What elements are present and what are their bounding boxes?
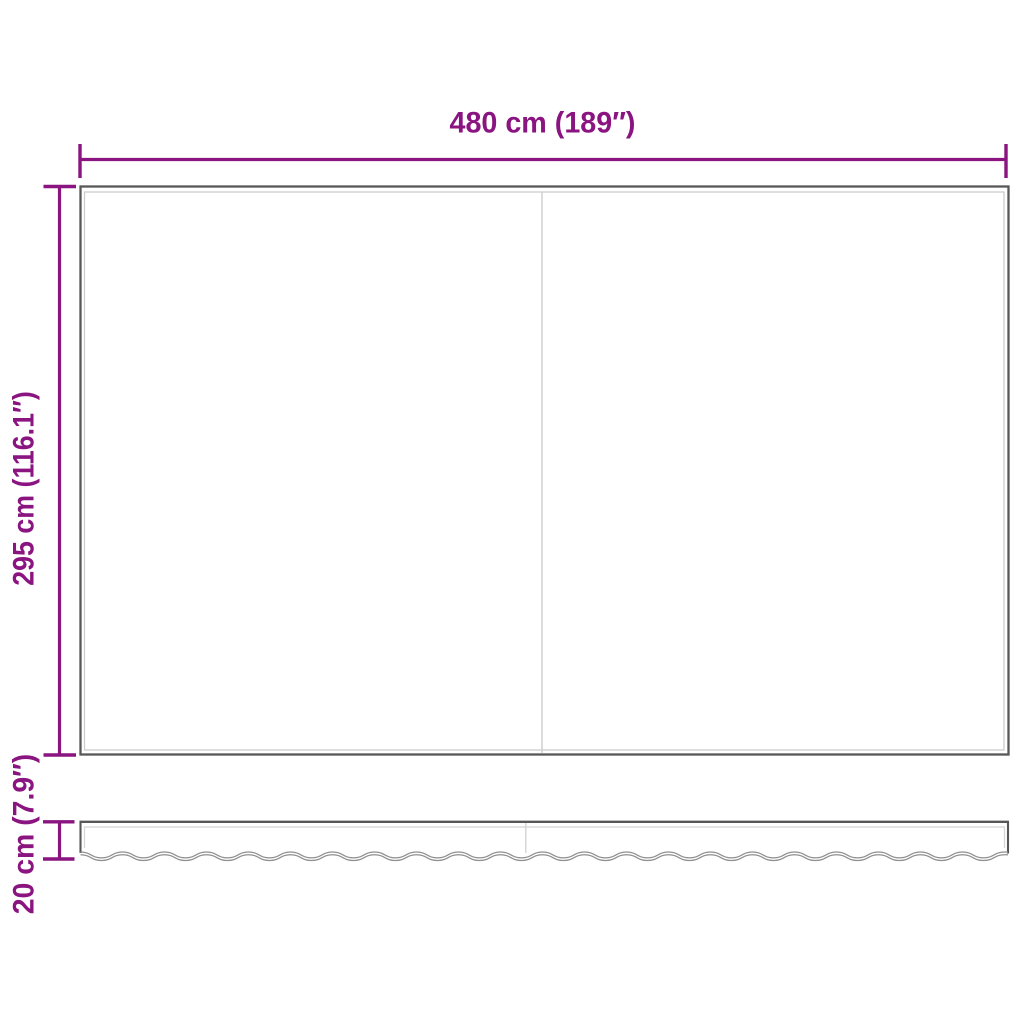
svg-text:480 cm (189″): 480 cm (189″) [450, 107, 636, 140]
svg-text:295 cm (116.1″): 295 cm (116.1″) [8, 391, 41, 586]
svg-text:20 cm (7.9″): 20 cm (7.9″) [8, 754, 41, 915]
